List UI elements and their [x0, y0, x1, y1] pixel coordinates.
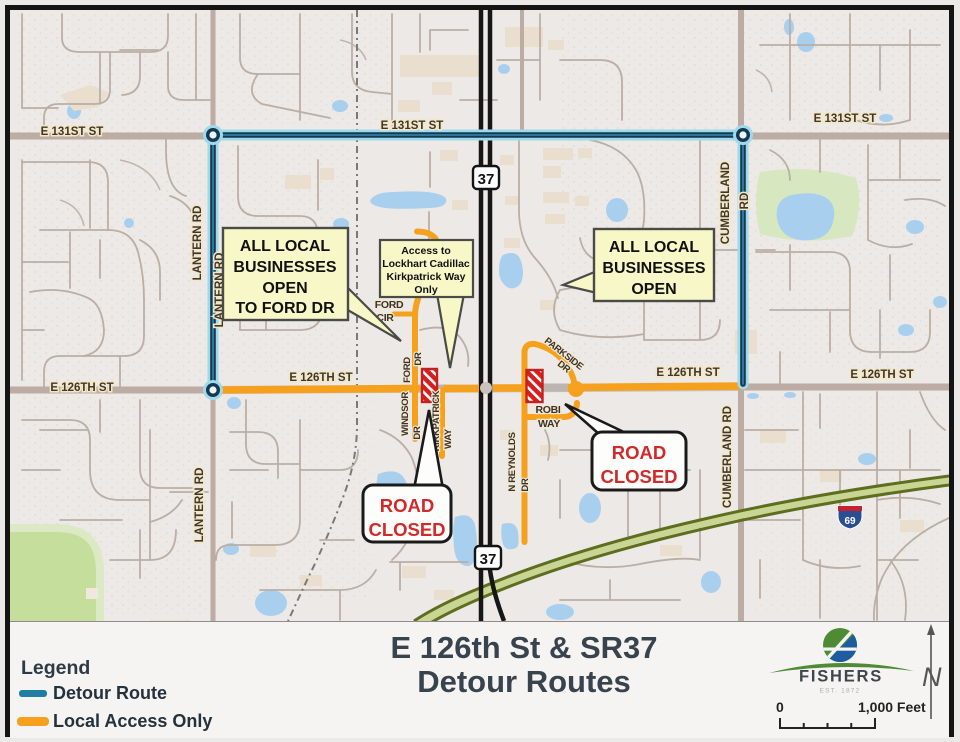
svg-text:E 131ST ST: E 131ST ST: [41, 126, 104, 138]
svg-text:Lockhart Cadillac: Lockhart Cadillac: [382, 258, 470, 270]
svg-text:TO FORD DR: TO FORD DR: [235, 300, 335, 317]
svg-text:DR: DR: [413, 352, 424, 366]
svg-text:37: 37: [478, 171, 495, 188]
svg-text:CLOSED: CLOSED: [368, 519, 445, 540]
svg-text:ROBI: ROBI: [535, 404, 560, 416]
svg-text:Only: Only: [414, 284, 437, 296]
svg-text:Kirkpatrick Way: Kirkpatrick Way: [387, 271, 466, 283]
svg-text:FORD: FORD: [402, 357, 413, 383]
svg-text:FORD: FORD: [375, 299, 404, 311]
svg-text:ROAD: ROAD: [612, 442, 666, 463]
svg-text:WINDSOR: WINDSOR: [400, 392, 411, 436]
svg-text:DR: DR: [520, 478, 531, 492]
svg-text:E 131ST ST: E 131ST ST: [814, 113, 877, 125]
svg-text:BUSINESSES: BUSINESSES: [233, 259, 336, 276]
svg-text:E 126TH ST: E 126TH ST: [850, 369, 913, 381]
svg-text:BUSINESSES: BUSINESSES: [602, 260, 705, 277]
svg-text:CLOSED: CLOSED: [600, 466, 677, 487]
svg-text:ROAD: ROAD: [380, 495, 434, 516]
svg-text:N REYNOLDS: N REYNOLDS: [507, 432, 518, 491]
svg-text:LANTERN RD: LANTERN RD: [194, 468, 206, 543]
svg-text:ALL LOCAL: ALL LOCAL: [240, 238, 331, 255]
svg-text:E 131ST ST: E 131ST ST: [381, 120, 444, 132]
svg-text:37: 37: [480, 551, 497, 568]
svg-text:OPEN: OPEN: [262, 280, 307, 297]
svg-text:Access to: Access to: [401, 245, 451, 257]
svg-text:FISHERS: FISHERS: [799, 668, 883, 686]
svg-text:RD: RD: [739, 193, 751, 210]
svg-text:N: N: [922, 662, 942, 692]
svg-text:WAY: WAY: [538, 418, 560, 430]
svg-text:CUMBERLAND: CUMBERLAND: [720, 162, 732, 244]
svg-text:E 126TH ST: E 126TH ST: [656, 367, 719, 379]
svg-text:69: 69: [844, 516, 856, 527]
svg-text:E 126TH ST: E 126TH ST: [289, 372, 352, 384]
svg-text:LANTERN RD: LANTERN RD: [192, 206, 204, 281]
svg-text:ALL LOCAL: ALL LOCAL: [609, 239, 700, 256]
svg-text:OPEN: OPEN: [631, 281, 676, 298]
svg-text:DR: DR: [412, 426, 423, 440]
svg-text:EST. 1872: EST. 1872: [820, 688, 861, 695]
svg-text:WAY: WAY: [443, 428, 454, 449]
svg-text:E 126TH ST: E 126TH ST: [50, 382, 113, 394]
svg-text:CUMBERLAND RD: CUMBERLAND RD: [722, 406, 734, 508]
